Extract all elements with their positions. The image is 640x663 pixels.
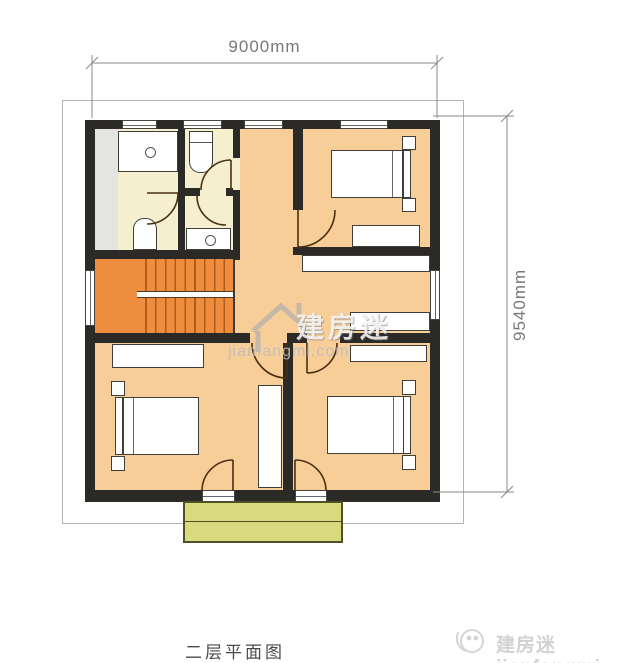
- plan-caption: 二层平面图: [185, 638, 285, 663]
- watermark-site-text: jianfangmi.com: [228, 343, 350, 361]
- floor-plan-canvas: 9000mm 9540mm 建房迷 jianfangmi.com 二层平面图 建…: [0, 0, 640, 663]
- dimension-lines: [86, 55, 514, 498]
- dimension-width-label: 9000mm: [92, 37, 437, 57]
- watermark-brand-text: 建房迷: [296, 306, 392, 346]
- watermark-footer-text: 建房迷jianfangmi: [496, 630, 640, 663]
- watermark-logo-icon: [457, 630, 483, 652]
- dimension-height-label: 9540mm: [510, 116, 534, 493]
